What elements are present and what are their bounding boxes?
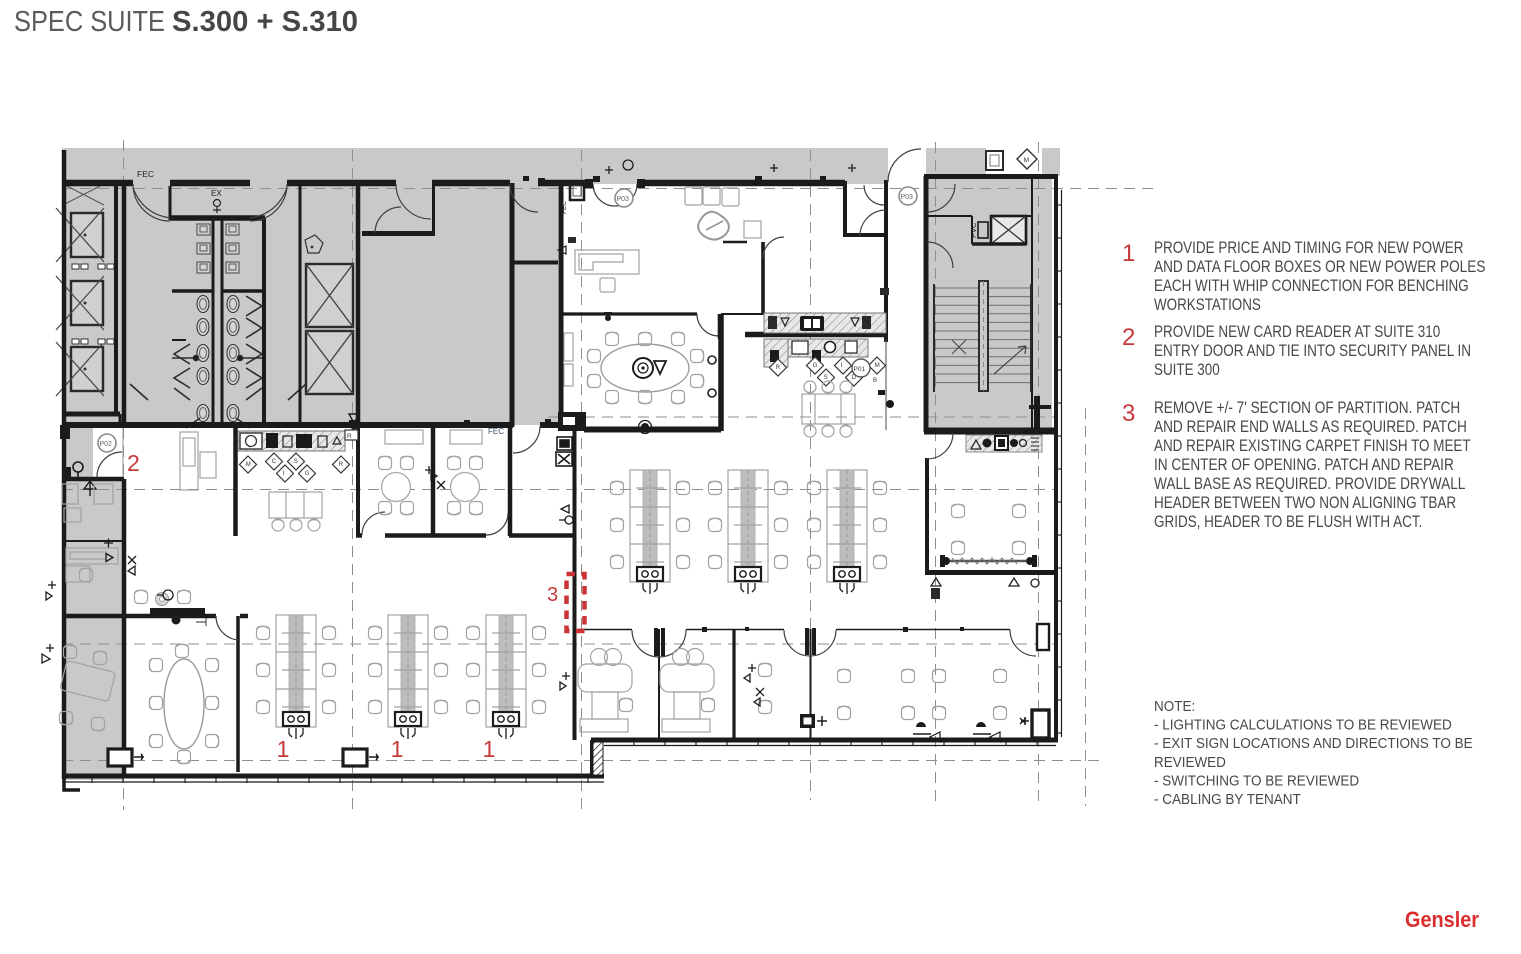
svg-text:R: R [776, 365, 781, 371]
svg-text:C: C [272, 459, 277, 465]
svg-text:S: S [294, 459, 298, 465]
svg-text:3: 3 [547, 584, 558, 606]
svg-text:P03: P03 [901, 194, 914, 201]
svg-text:B: B [873, 378, 877, 384]
svg-text:1: 1 [1122, 240, 1135, 267]
svg-text:SPEC SUITE: SPEC SUITE [14, 6, 165, 38]
svg-text:G: G [813, 363, 818, 369]
svg-text:R: R [339, 462, 344, 468]
svg-text:2: 2 [127, 450, 140, 476]
svg-text:M: M [1024, 157, 1029, 164]
svg-text:EX: EX [211, 189, 222, 198]
svg-text:3: 3 [1122, 400, 1135, 427]
svg-text:REMOVE +/- 7' SECTION OF PARTI: REMOVE +/- 7' SECTION OF PARTITION. PATC… [1154, 398, 1471, 531]
svg-text:S.300 + S.310: S.300 + S.310 [172, 6, 358, 38]
svg-text:G: G [305, 471, 310, 477]
svg-text:R: R [347, 433, 352, 440]
svg-text:P03: P03 [617, 196, 630, 203]
svg-text:Gensler: Gensler [1405, 907, 1479, 932]
svg-text:M: M [246, 462, 251, 468]
svg-text:1: 1 [391, 736, 404, 762]
svg-text:FEC: FEC [488, 427, 504, 436]
svg-text:S: S [824, 375, 828, 381]
svg-text:P01: P01 [854, 366, 866, 373]
svg-text:2: 2 [1122, 324, 1135, 351]
svg-text:1: 1 [277, 736, 290, 762]
svg-text:FEC: FEC [998, 426, 1015, 436]
svg-text:PVC: PVC [969, 222, 978, 238]
svg-text:M: M [875, 363, 880, 369]
svg-text:FEC: FEC [561, 201, 568, 214]
svg-text:FEC: FEC [137, 169, 154, 179]
svg-text:P02: P02 [100, 441, 113, 448]
svg-text:1: 1 [483, 736, 496, 762]
